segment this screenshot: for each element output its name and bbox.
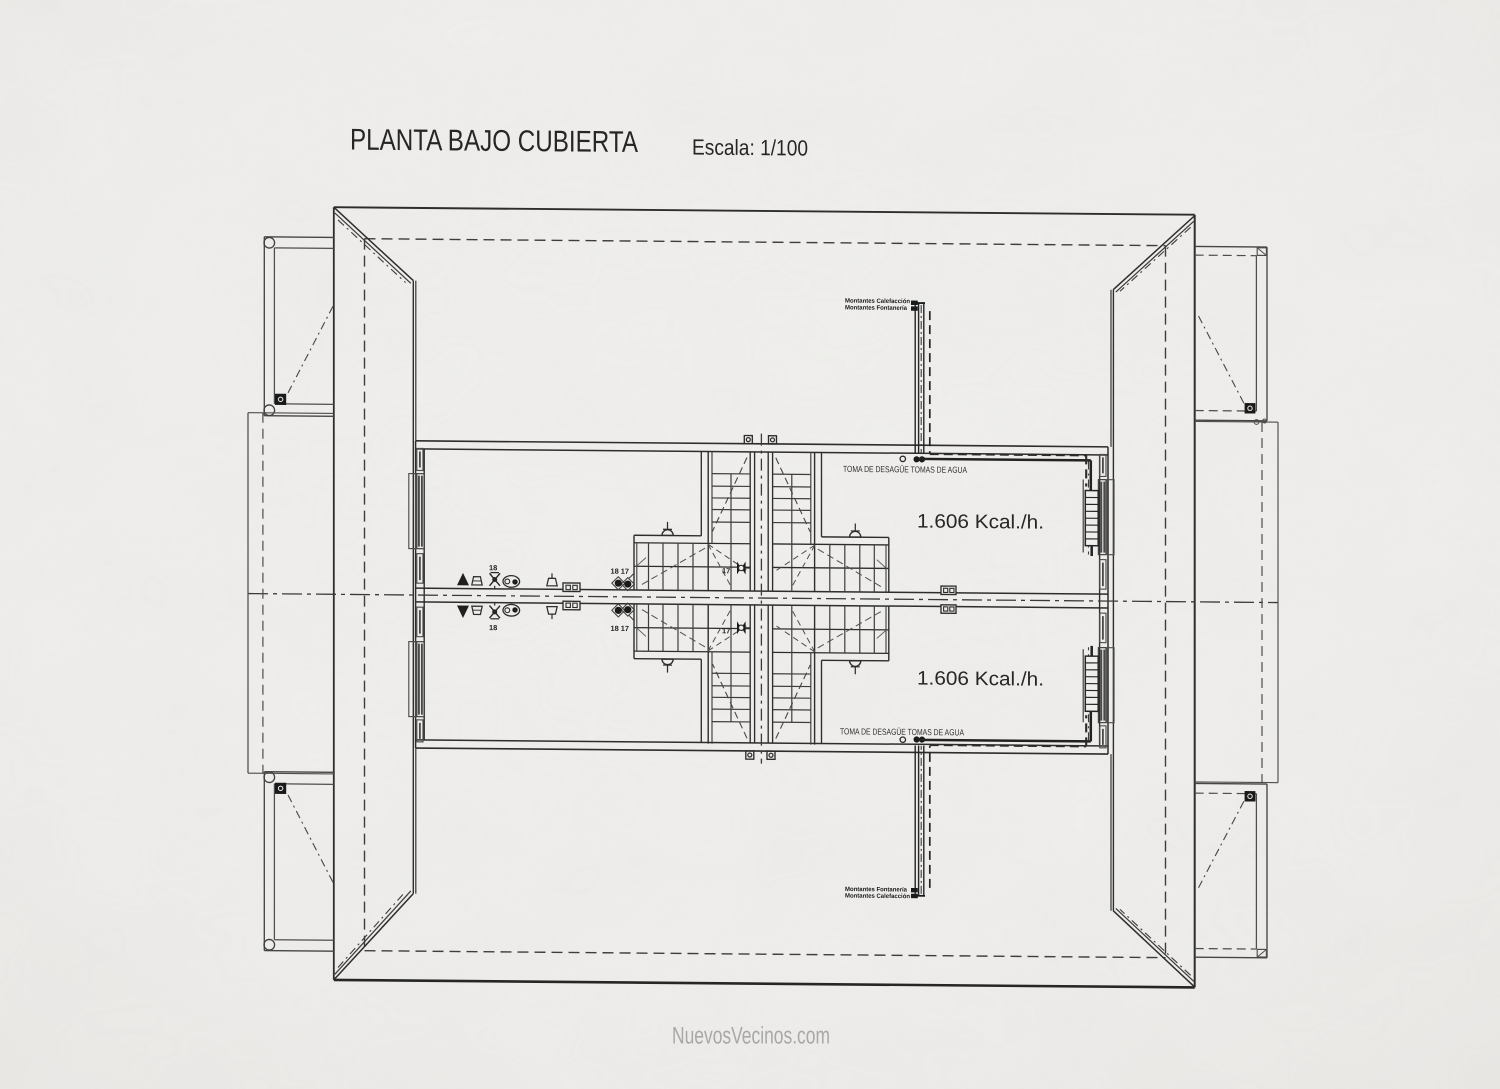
svg-text:Montantes Fontanería: Montantes Fontanería [845, 304, 908, 312]
svg-text:1.606 Kcal./h.: 1.606 Kcal./h. [917, 511, 1044, 534]
svg-text:18: 18 [489, 563, 497, 572]
svg-text:17: 17 [722, 626, 730, 635]
svg-text:18: 18 [489, 623, 497, 632]
svg-text:Escala: 1/100: Escala: 1/100 [692, 135, 808, 161]
svg-text:Montantes Calefacción: Montantes Calefacción [845, 893, 910, 901]
svg-text:NuevosVecinos.com: NuevosVecinos.com [672, 1023, 830, 1050]
svg-text:1.606 Kcal./h.: 1.606 Kcal./h. [917, 668, 1044, 691]
svg-text:TOMA DE DESAGÜE TOMAS DE AGUA: TOMA DE DESAGÜE TOMAS DE AGUA [843, 464, 967, 475]
svg-text:18 17: 18 17 [611, 567, 630, 576]
svg-text:PLANTA BAJO CUBIERTA: PLANTA BAJO CUBIERTA [350, 124, 638, 160]
svg-text:TOMA DE DESAGÜE TOMAS DE AGUA: TOMA DE DESAGÜE TOMAS DE AGUA [840, 726, 964, 737]
svg-text:18 17: 18 17 [611, 624, 630, 633]
svg-text:17: 17 [722, 566, 730, 575]
